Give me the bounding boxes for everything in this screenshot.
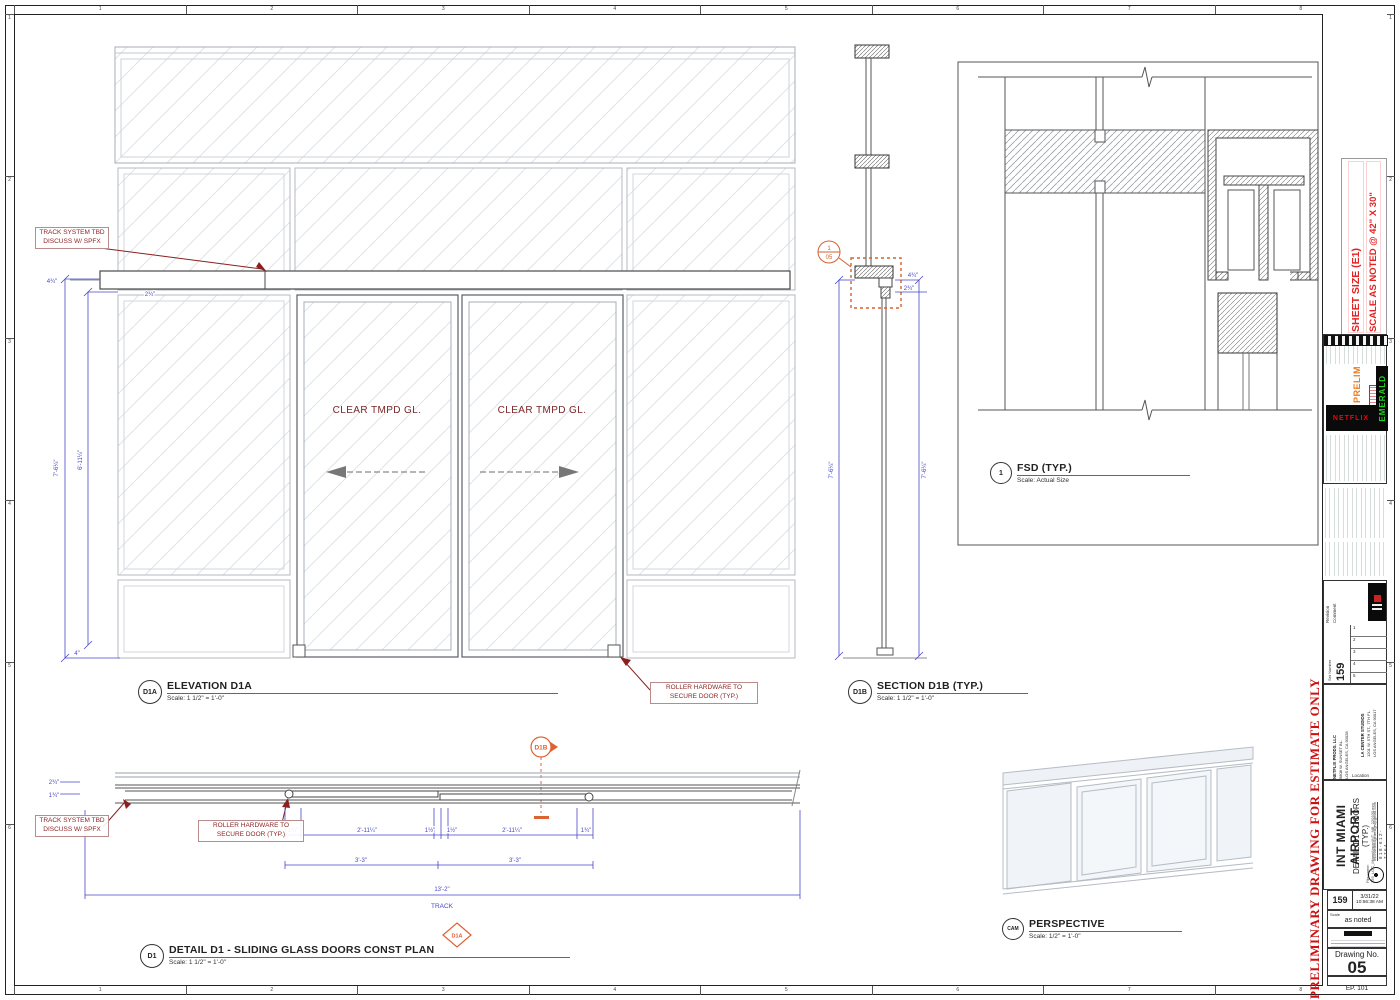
sheet-size-line1: SHEET SIZE (E1) <box>1348 161 1364 333</box>
elevation-label: D1A ELEVATION D1A Scale: 1 1/2" = 1'-0" <box>138 680 558 704</box>
dim-plan-door-a: 2'-11¼" <box>357 828 377 834</box>
dim-plan-mid-a: 1½" <box>425 827 435 834</box>
drawing-sheet: 12345678 12345678 123456 123456 <box>0 0 1400 1000</box>
address-block: LA CENTER STUDIOS 1201 W. 5TH ST., 7TH F… <box>1323 684 1387 780</box>
grid-reference: 2 <box>5 176 14 338</box>
designer-logo <box>1368 867 1384 883</box>
elevation-title: ELEVATION D1A <box>167 680 558 694</box>
grid-reference: 3 <box>357 986 529 995</box>
grid-reference: 4 <box>5 500 14 662</box>
glass-label-door2: CLEAR TMPD GL. <box>498 405 587 416</box>
dim-elev-bottom: 4" <box>74 651 79 657</box>
glass-label-door1: CLEAR TMPD GL. <box>333 405 422 416</box>
grid-reference: 1 <box>14 986 186 995</box>
grid-reference: 2 <box>1386 176 1395 338</box>
grid-reference: 5 <box>5 662 14 824</box>
disclaimer-row <box>1327 928 1387 948</box>
track-system-note-elevation: TRACK SYSTEM TBDDISCUSS W/ SPFX <box>35 227 109 249</box>
grid-reference: 1 <box>14 5 186 14</box>
section-tag: D1B <box>848 680 872 704</box>
grid-reference: 5 <box>700 986 872 995</box>
prelim-stamp: PRELIM <box>1346 366 1368 406</box>
svg-text:D1B: D1B <box>534 745 547 752</box>
plan-tag: D1 <box>140 944 164 968</box>
setno-date-row: 159 3/31/22 10:56:38 AM <box>1327 890 1387 910</box>
revision-header: Revision <box>1325 583 1330 623</box>
dim-sect-height-right: 7'-6¼" <box>922 462 928 479</box>
grid-reference: 4 <box>529 986 701 995</box>
grid-reference: 1 <box>1386 14 1395 176</box>
grid-reference: 5 <box>700 5 872 14</box>
grid-reference: 2 <box>186 986 358 995</box>
production-address: NETFLIX PRODS. LLC 5808 W. SUNSET BL. LO… <box>1332 709 1349 779</box>
perspective-scale: Scale: 1/2" = 1'-0" <box>1029 933 1182 940</box>
fsd-tag: 1 <box>990 462 1012 484</box>
grid-reference: 6 <box>5 824 14 986</box>
dim-plan-track-len: 13'-2" <box>434 887 449 893</box>
grid-reference: 8 <box>1215 5 1387 14</box>
grid-reference: 6 <box>872 5 1044 14</box>
plan-section-marker-d1b: D1B <box>531 737 558 819</box>
location-label: Location <box>1352 773 1369 778</box>
revision-row: 3 <box>1351 649 1387 661</box>
grid-reference: 3 <box>5 338 14 500</box>
studio-address: LA CENTER STUDIOS 1201 W. 5TH ST., 7TH F… <box>1360 687 1377 757</box>
plan-track-word: TRACK <box>431 903 454 910</box>
grid-reference: 5 <box>1386 662 1395 824</box>
plan-drawing: D1B <box>30 720 830 955</box>
section-callout-sheet: 05 <box>826 255 833 261</box>
episode-label: EP. 101 <box>1346 985 1368 992</box>
elevation-drawing: CLEAR TMPD GL. CLEAR TMPD GL. 7'-6¼" 6'- <box>30 40 820 740</box>
dim-plan-small-b: 1¾" <box>49 793 59 799</box>
credits-fineprint-bottom <box>1326 435 1386 481</box>
netflix-logo: NETFLIX <box>1326 405 1376 431</box>
grid-reference: 3 <box>357 5 529 14</box>
set-number-value: 159 <box>1335 625 1347 681</box>
section-callout-number: 1 <box>827 246 831 252</box>
perspective-label: CAM PERSPECTIVE Scale: 1/2" = 1'-0" <box>1002 918 1182 940</box>
grid-ruler-top: 12345678 <box>14 5 1386 14</box>
revision-row: 1 <box>1351 625 1387 637</box>
dim-plan-mid-b: 1½" <box>447 827 457 834</box>
dim-sect-height-left: 7'-6¼" <box>829 462 835 479</box>
plan-label: D1 DETAIL D1 - SLIDING GLASS DOORS CONST… <box>140 944 570 968</box>
fsd-scale: Scale: Actual Size <box>1017 477 1190 484</box>
set-number-label: Set Number <box>1327 625 1332 681</box>
dim-plan-panel-b: 3'-3" <box>509 858 521 864</box>
credits-fineprint-top <box>1326 346 1386 364</box>
dim-elev-inner-height: 6'-11¼" <box>78 450 84 470</box>
plan-title: DETAIL D1 - SLIDING GLASS DOORS CONST PL… <box>169 944 570 958</box>
credits-fineprint-3 <box>1325 542 1385 576</box>
credits-fineprint-2 <box>1325 488 1385 538</box>
revision-rows: 12345 <box>1350 625 1387 683</box>
section-title: SECTION D1B (TYP.) <box>877 680 1028 694</box>
dim-sect-a: 4¾" <box>908 273 918 279</box>
roller-hardware-note-plan: ROLLER HARDWARE TOSECURE DOOR (TYP.) <box>198 820 304 842</box>
dim-plan-door-b: 2'-11¼" <box>502 828 522 834</box>
dim-elev-outer-height: 7'-6¼" <box>54 460 60 477</box>
grid-ruler-bottom: 12345678 <box>14 986 1386 995</box>
elevation-tag: D1A <box>138 680 162 704</box>
grid-reference: 4 <box>1386 500 1395 662</box>
designer-phone: 818-612-7764 <box>1378 813 1388 859</box>
episode-cell: EP. 101 <box>1327 976 1387 986</box>
revision-row: 4 <box>1351 661 1387 673</box>
set-number-cell: Set Number 159 <box>1327 625 1347 681</box>
designer-email: michaelbridgedesign@gmail.com <box>1372 811 1377 861</box>
sheet-size-stamp: SHEET SIZE (E1) SCALE AS NOTED @ 42" X 3… <box>1341 158 1387 336</box>
dim-sect-b: 2¾" <box>904 286 914 292</box>
sheet-title-block: INT MIAMI AIRPORT DETAIL D1 - DOORS (TYP… <box>1323 780 1387 890</box>
scale-value: as noted <box>1328 917 1388 924</box>
plot-time: 10:56:38 AM <box>1356 900 1383 906</box>
title-block: SHEET SIZE (E1) SCALE AS NOTED @ 42" X 3… <box>1322 14 1387 986</box>
perspective-drawing <box>985 715 1275 915</box>
revision-row: 2 <box>1351 637 1387 649</box>
grid-reference: 2 <box>186 5 358 14</box>
section-scale: Scale: 1 1/2" = 1'-0" <box>877 695 1028 702</box>
dim-plan-panel-a: 3'-3" <box>355 858 367 864</box>
plan-scale: Scale: 1 1/2" = 1'-0" <box>169 959 570 966</box>
fsd-label: 1 FSD (TYP.) Scale: Actual Size <box>990 462 1190 484</box>
grid-reference: 7 <box>1043 986 1215 995</box>
vendor-logo <box>1368 583 1386 621</box>
scale-row: Scale as noted <box>1327 910 1387 928</box>
grid-reference: 1 <box>5 14 14 176</box>
grid-reference: 7 <box>1043 5 1215 14</box>
drawing-no-value: 05 <box>1328 959 1386 976</box>
dim-plan-small-a: 2¾" <box>49 780 59 786</box>
grid-reference: 6 <box>872 986 1044 995</box>
svg-text:D1A: D1A <box>451 934 462 940</box>
track-system-note-plan: TRACK SYSTEM TBDDISCUSS W/ SPFX <box>35 815 109 837</box>
fsd-title: FSD (TYP.) <box>1017 462 1190 476</box>
grid-ruler-left: 123456 <box>5 14 14 986</box>
drawing-no-cell: Drawing No. 05 <box>1327 948 1387 976</box>
perspective-title: PERSPECTIVE <box>1029 918 1182 932</box>
dim-elev-top-a: 4¾" <box>47 279 57 285</box>
sheet-size-line2: SCALE AS NOTED @ 42" X 30" <box>1366 161 1381 333</box>
grid-reference: 4 <box>529 5 701 14</box>
disclaimer-fineprint <box>1331 938 1385 947</box>
perspective-tag: CAM <box>1002 918 1024 940</box>
preliminary-note: PRELIMINARY DRAWING FOR ESTIMATE ONLY <box>1306 688 1323 988</box>
comment-header: Comment <box>1332 583 1337 623</box>
elevation-scale: Scale: 1 1/2" = 1'-0" <box>167 695 558 702</box>
filmstrip-graphic <box>1324 335 1388 346</box>
disclaimer-banner <box>1344 931 1372 936</box>
show-logo-emerald: EMERALD <box>1376 366 1388 431</box>
roller-hardware-note-elevation: ROLLER HARDWARE TOSECURE DOOR (TYP.) <box>650 682 758 704</box>
section-label: D1B SECTION D1B (TYP.) Scale: 1 1/2" = 1… <box>848 680 1028 704</box>
dim-elev-top-b: 2¾" <box>145 292 155 298</box>
production-block: PRELIM NETFLIX EMERALD <box>1323 334 1387 484</box>
dim-plan-end-r: 1¾" <box>581 828 591 834</box>
set-number-bottom: 159 <box>1328 891 1353 909</box>
revision-table: Revision Comment Set Number 159 12345 <box>1323 580 1387 684</box>
